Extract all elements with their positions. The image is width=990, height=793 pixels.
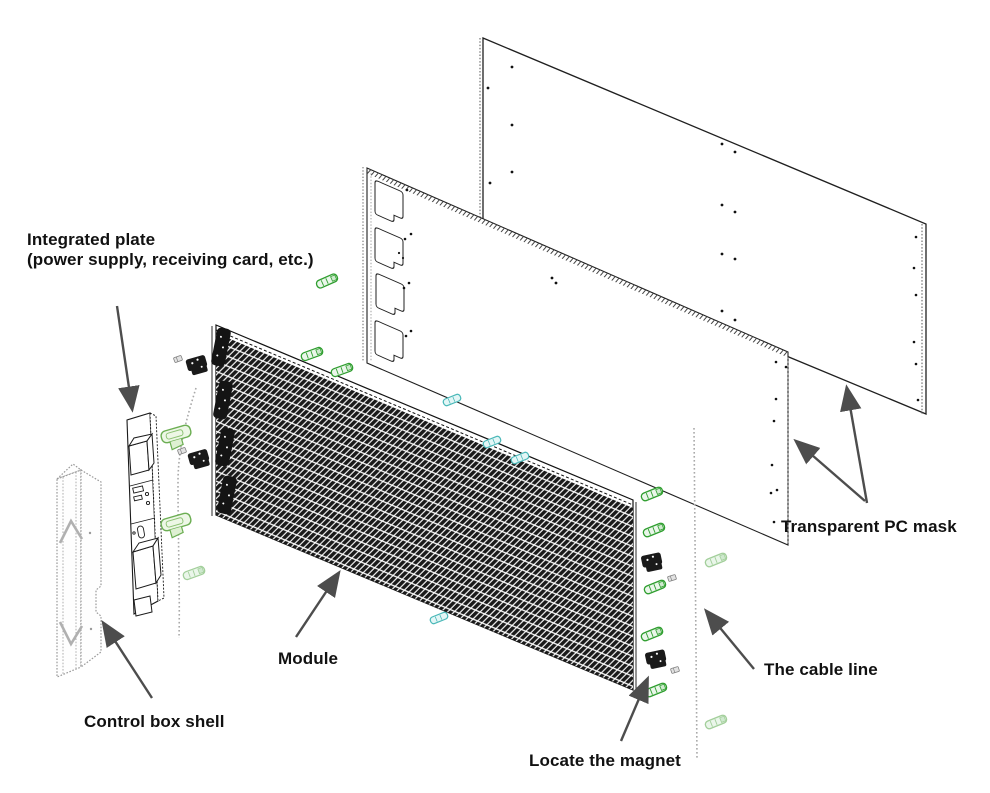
green-clip-large [160, 424, 194, 451]
green-clip-large [160, 512, 194, 539]
green-clip [642, 522, 665, 538]
green-clip [640, 486, 663, 502]
plate-top-box [129, 434, 154, 475]
label-locate-the-magnet: Locate the magnet [529, 751, 681, 771]
label-module: Module [278, 649, 338, 669]
plate-bottom-box [133, 538, 161, 616]
magnet [185, 355, 209, 377]
label-control-box-shell: Control box shell [84, 712, 225, 732]
top-green-clips [300, 273, 353, 378]
shell-front-face [57, 470, 81, 677]
green-clip [315, 273, 338, 289]
green-clip-faded [704, 552, 727, 568]
magnet [641, 552, 664, 573]
shell-side-face [81, 470, 101, 667]
arrow-cable-line [707, 612, 754, 669]
arrow-pc-mask-up [847, 389, 867, 503]
screw [667, 574, 676, 581]
green-clip-faded [704, 714, 727, 730]
arrow-module [296, 574, 338, 637]
green-clip [300, 346, 323, 361]
label-integrated-plate: Integrated plate (power supply, receivin… [27, 230, 314, 270]
right-parts-column [640, 486, 727, 730]
arrow-locate-magnet [621, 680, 647, 741]
green-clip [640, 626, 663, 642]
screw [670, 666, 679, 673]
screw [177, 447, 186, 454]
green-clip [643, 579, 666, 595]
exploded-diagram-scene: Integrated plate (power supply, receivin… [0, 0, 990, 793]
green-clip-faded [182, 565, 205, 580]
green-clip [644, 682, 667, 698]
screw [173, 355, 182, 362]
arrow-integrated-plate [117, 306, 132, 408]
green-clip [330, 362, 353, 377]
label-the-cable-line: The cable line [764, 660, 878, 680]
arrow-pc-mask-left [797, 442, 865, 501]
magnet [645, 649, 668, 670]
left-parts-column [160, 355, 211, 581]
label-transparent-pc-mask: Transparent PC mask [781, 517, 957, 537]
control-box-shell [57, 464, 101, 677]
integrated-plate-label-line2: (power supply, receiving card, etc.) [27, 250, 314, 269]
arrow-control-box-shell [104, 624, 152, 698]
magnet [187, 449, 211, 471]
teal-tag [429, 611, 448, 624]
integrated-plate-label-line1: Integrated plate [27, 230, 155, 249]
integrated-plate [127, 413, 164, 616]
